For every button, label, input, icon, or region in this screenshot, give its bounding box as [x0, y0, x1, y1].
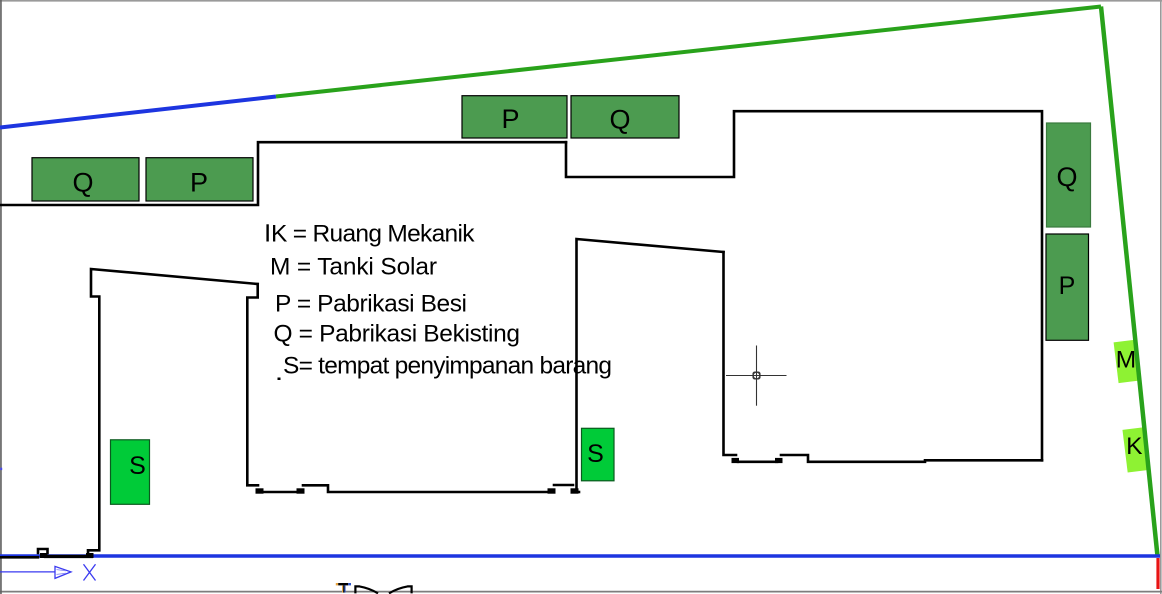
svg-text:Q: Q [609, 105, 630, 135]
svg-text:Q = Pabrikasi Bekisting: Q = Pabrikasi Bekisting [274, 320, 521, 347]
svg-text:S: S [587, 440, 604, 468]
svg-text:Q: Q [72, 168, 93, 198]
svg-text:P = Pabrikasi Besi: P = Pabrikasi Besi [275, 291, 467, 318]
svg-text:S= tempat penyimpanan barang: S= tempat penyimpanan barang [283, 352, 612, 379]
svg-text:K: K [1126, 433, 1143, 460]
svg-text:K = Ruang Mekanik: K = Ruang Mekanik [271, 221, 475, 248]
svg-text:P: P [190, 168, 208, 198]
svg-text:Q: Q [1056, 162, 1077, 192]
svg-text:P: P [1059, 272, 1076, 300]
svg-text:P: P [501, 104, 519, 134]
svg-text:M = Tanki Solar: M = Tanki Solar [270, 253, 437, 280]
svg-text:M: M [1116, 347, 1136, 374]
svg-text:S: S [129, 452, 146, 480]
